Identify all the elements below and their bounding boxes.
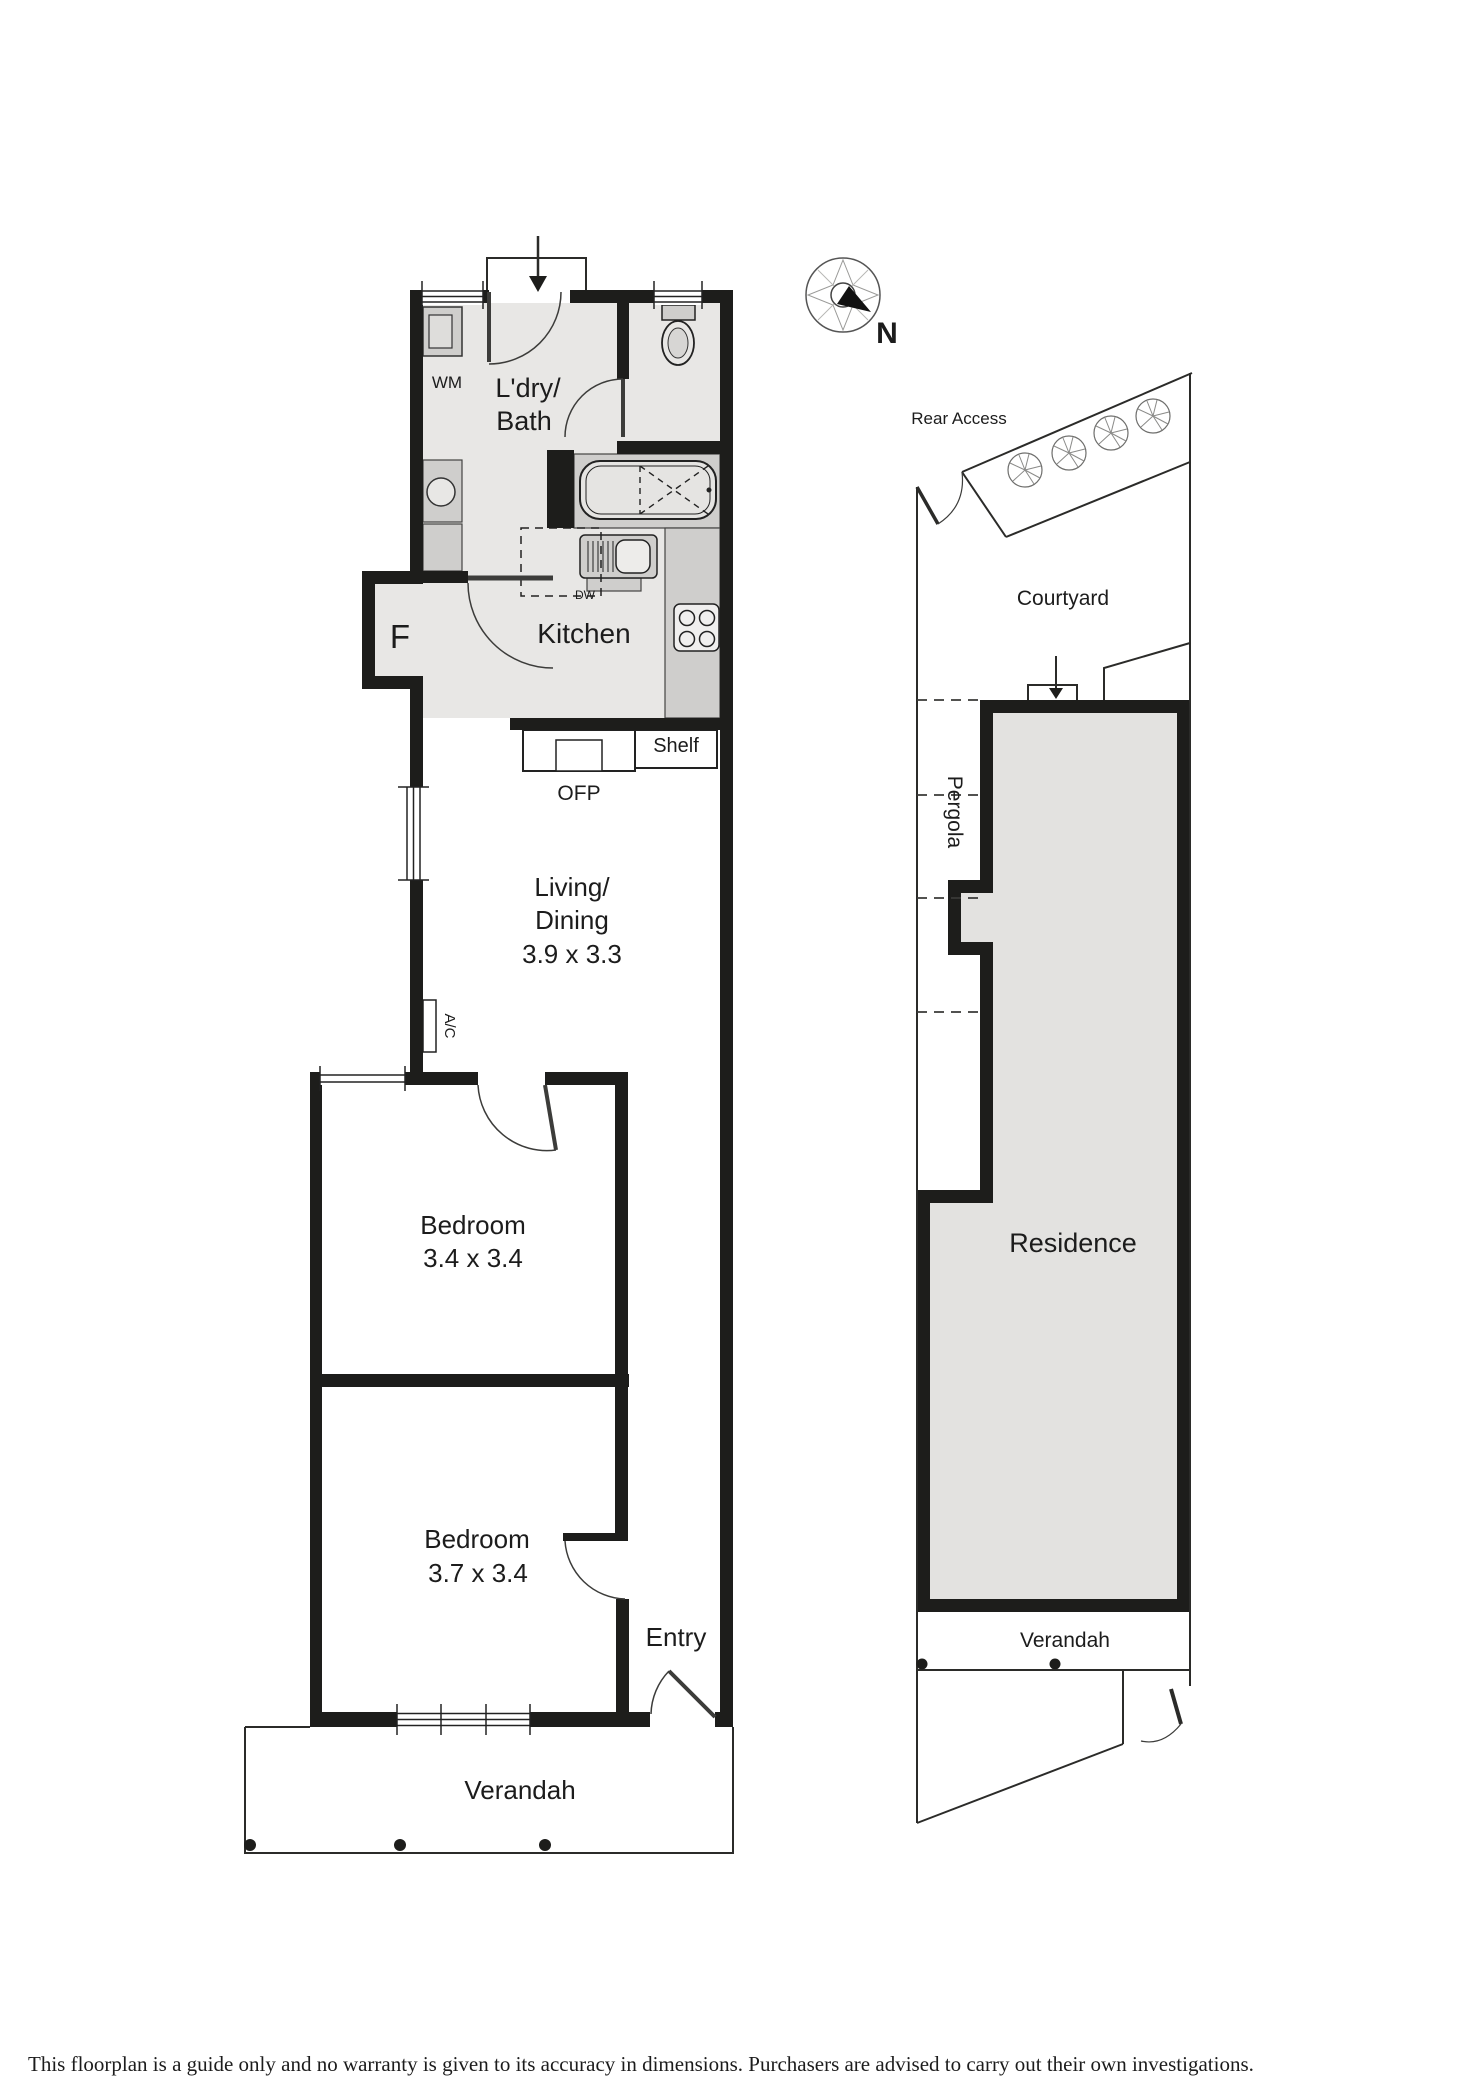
bathtub-icon bbox=[580, 461, 716, 519]
ac-unit bbox=[423, 1000, 436, 1052]
window-icon-bedroom1 bbox=[320, 1066, 405, 1091]
disclaimer-text: This floorplan is a guide only and no wa… bbox=[28, 2052, 1254, 2076]
entry-label: Entry bbox=[646, 1622, 707, 1652]
washing-machine-icon bbox=[423, 307, 462, 356]
ac-label: A/C bbox=[441, 1013, 458, 1038]
laundry-cabinet bbox=[423, 524, 462, 571]
living-dining-dims: 3.9 x 3.3 bbox=[522, 939, 622, 969]
verandah-post bbox=[1050, 1659, 1061, 1670]
tree-icon bbox=[1008, 453, 1042, 487]
verandah-post bbox=[917, 1659, 928, 1670]
courtyard-label: Courtyard bbox=[1017, 587, 1109, 610]
shelf-label: Shelf bbox=[653, 735, 699, 757]
wm-label: WM bbox=[432, 373, 462, 392]
door-swing-bedroom2 bbox=[565, 1541, 625, 1599]
trees bbox=[1008, 399, 1170, 487]
tree-icon bbox=[1136, 399, 1170, 433]
verandah-post bbox=[539, 1839, 551, 1851]
window-icon-bedroom2 bbox=[397, 1704, 530, 1735]
compass: N bbox=[806, 258, 898, 350]
window-icon-living bbox=[398, 787, 429, 880]
tree-icon bbox=[1052, 436, 1086, 470]
entry-arrow-icon bbox=[529, 236, 547, 292]
fridge-label: F bbox=[390, 618, 410, 655]
pergola-label: Pergola bbox=[943, 776, 966, 849]
floorplan-canvas: WM L'dry/ Bath F Kitchen DW Shelf OFP Li… bbox=[0, 0, 1472, 2081]
toilet-icon bbox=[662, 305, 695, 365]
bedroom1-dims: 3.4 x 3.4 bbox=[423, 1243, 523, 1273]
site-verandah bbox=[917, 1659, 1191, 1671]
rear-access-label: Rear Access bbox=[911, 409, 1006, 428]
site-plan: Rear Access Courtyard Pergola Residence … bbox=[911, 373, 1192, 1823]
dishwasher-label: DW bbox=[575, 588, 596, 602]
window-icon-laundry bbox=[422, 281, 483, 309]
laundry-bath-label-2: Bath bbox=[496, 406, 552, 436]
laundry-trough-icon bbox=[427, 478, 455, 506]
bedroom1-label: Bedroom bbox=[420, 1210, 526, 1240]
north-label: N bbox=[876, 317, 898, 350]
window-icon-wc bbox=[654, 281, 702, 309]
residence-entry bbox=[1028, 656, 1077, 700]
dwelling-floorplan: WM L'dry/ Bath F Kitchen DW Shelf OFP Li… bbox=[244, 236, 733, 1853]
door-swing-entry bbox=[651, 1671, 715, 1717]
kitchen-sink-icon bbox=[580, 535, 657, 578]
kitchen-label: Kitchen bbox=[537, 618, 630, 649]
entrance-porch bbox=[487, 236, 586, 292]
floorplan-page: WM L'dry/ Bath F Kitchen DW Shelf OFP Li… bbox=[0, 0, 1472, 2081]
living-dining-label-2: Dining bbox=[535, 905, 609, 935]
bedroom2-dims: 3.7 x 3.4 bbox=[428, 1558, 528, 1588]
residence-floor bbox=[930, 713, 1177, 1599]
door-swing-bedroom1 bbox=[478, 1085, 556, 1151]
verandah-post bbox=[394, 1839, 406, 1851]
cooktop-icon bbox=[674, 604, 719, 651]
laundry-bath-label-1: L'dry/ bbox=[495, 373, 561, 403]
bedroom2-label: Bedroom bbox=[424, 1524, 530, 1554]
living-dining-label-1: Living/ bbox=[534, 872, 610, 902]
fireplace-label: OFP bbox=[557, 782, 600, 805]
verandah-post bbox=[244, 1839, 256, 1851]
fireplace-box bbox=[523, 730, 635, 771]
front-gate bbox=[1141, 1689, 1181, 1742]
rear-gate bbox=[917, 472, 963, 524]
verandah-label: Verandah bbox=[464, 1775, 575, 1805]
sink-cabinet bbox=[587, 578, 641, 591]
site-verandah-label: Verandah bbox=[1020, 1629, 1110, 1652]
tree-icon bbox=[1094, 416, 1128, 450]
residence-label: Residence bbox=[1009, 1228, 1137, 1258]
pergola-lines bbox=[917, 700, 980, 1012]
